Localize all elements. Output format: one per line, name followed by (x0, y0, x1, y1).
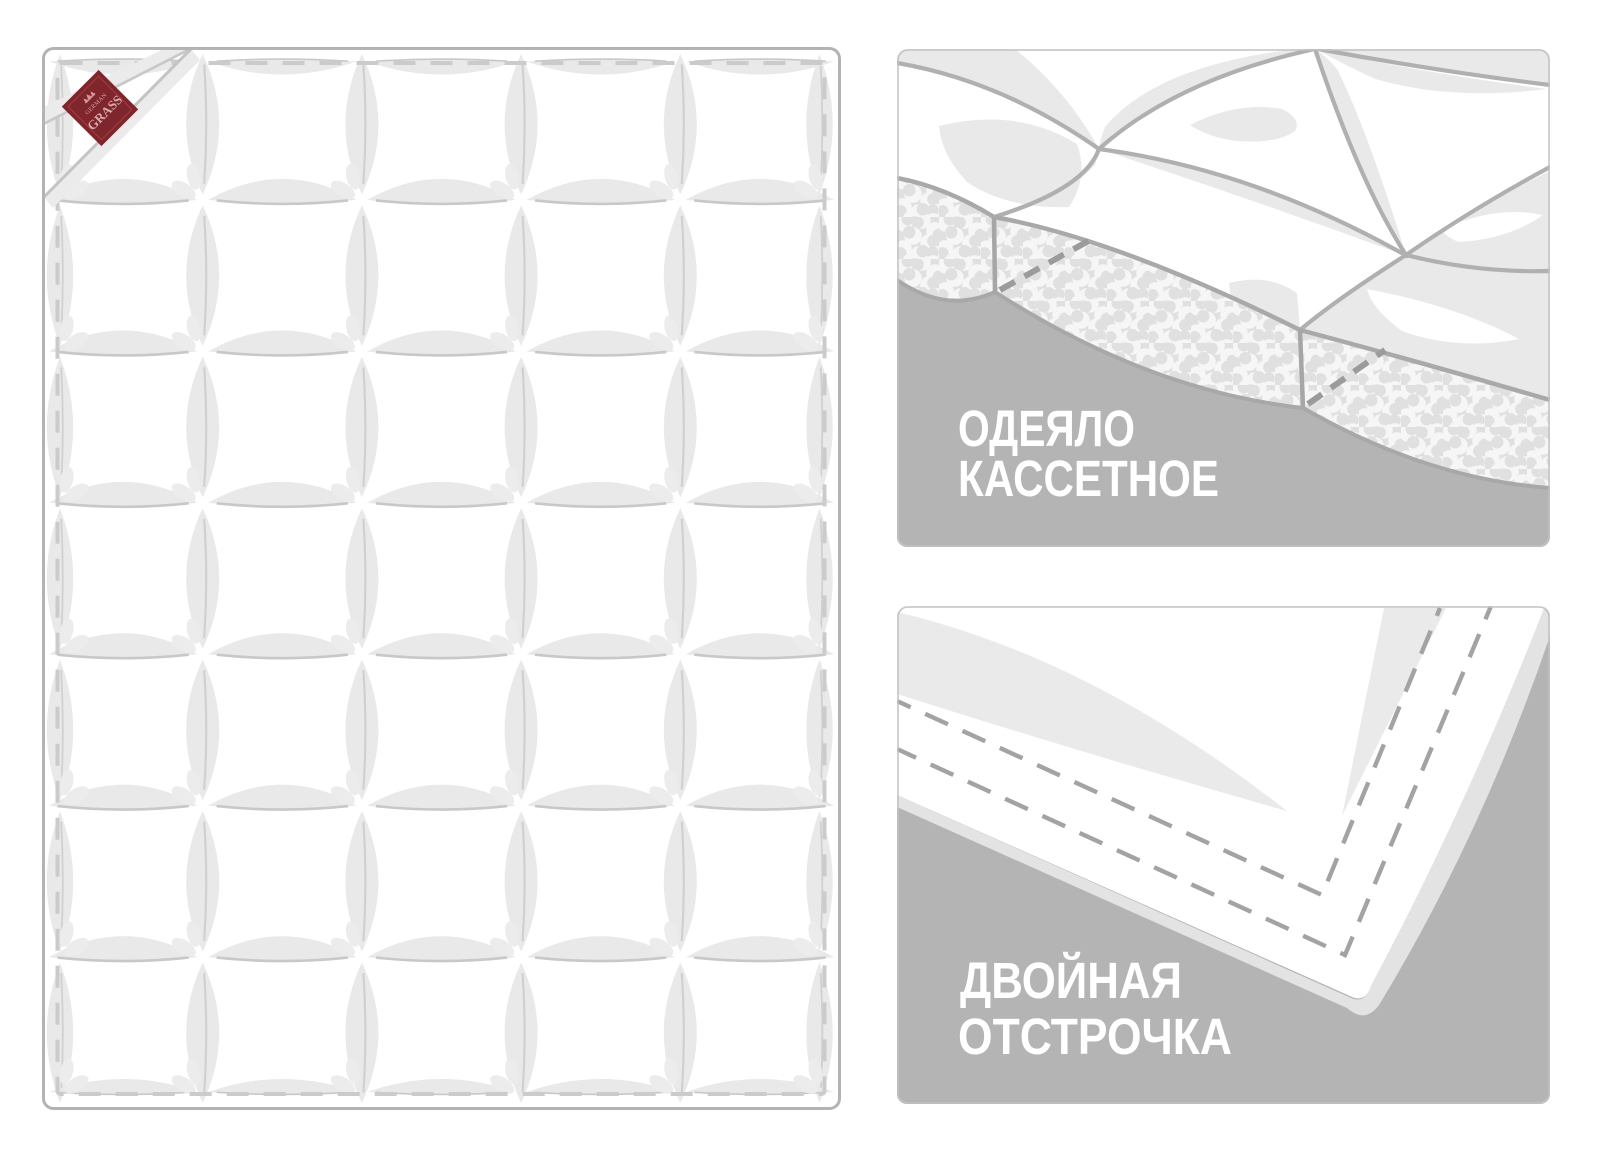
svg-text:ОДЕЯЛО: ОДЕЯЛО (958, 400, 1135, 457)
svg-text:ОТСТРОЧКА: ОТСТРОЧКА (958, 1008, 1232, 1065)
svg-text:ДВОЙНАЯ: ДВОЙНАЯ (960, 951, 1182, 1009)
svg-text:КАССЕТНОЕ: КАССЕТНОЕ (958, 450, 1219, 507)
